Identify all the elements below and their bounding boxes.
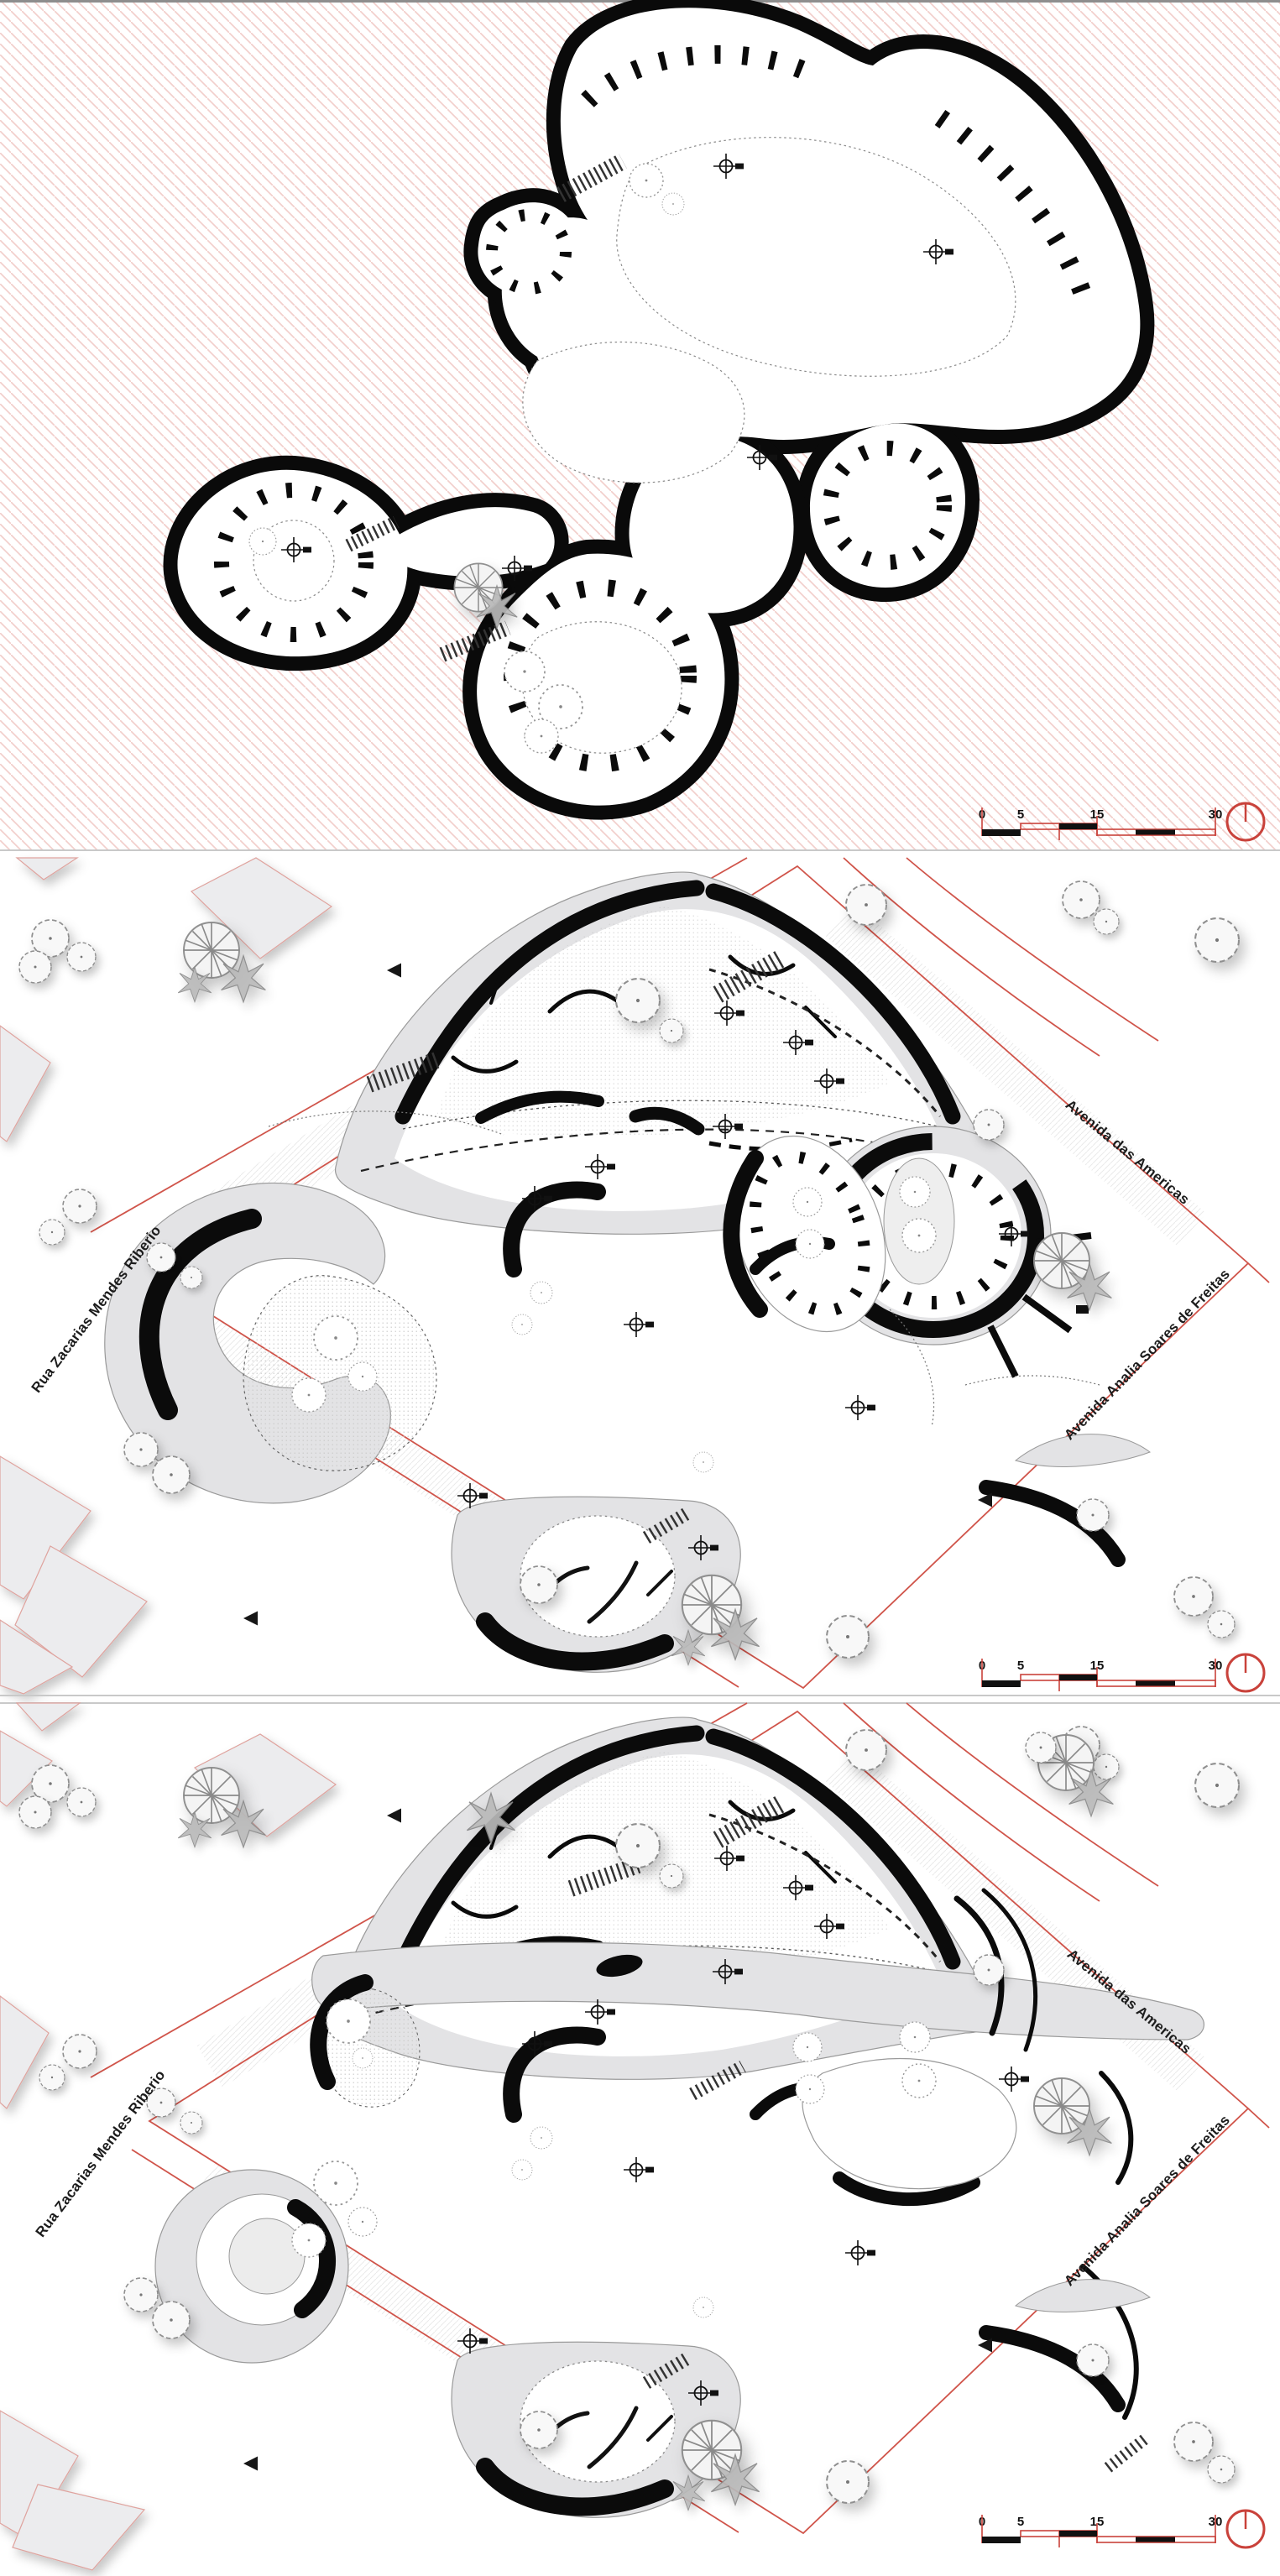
tree-icon (249, 528, 276, 555)
terrace (1016, 2280, 1150, 2312)
panel-divider (0, 1702, 1280, 1704)
tree-icon (525, 719, 558, 753)
scale-bar (979, 1654, 1264, 1691)
tree-icon (504, 651, 545, 692)
context-buildings (0, 1703, 336, 2570)
tree-icon (662, 193, 684, 215)
panel-floor-plan (0, 0, 1280, 851)
scale-bar (979, 2511, 1264, 2547)
panel-divider (0, 1695, 1280, 1696)
terrace (1016, 1434, 1150, 1467)
tree-icon (630, 164, 663, 197)
east-wing (708, 1115, 1091, 1377)
panel-divider (0, 849, 1280, 851)
drawing-sheet: 0 5 15 30 (0, 0, 1280, 2576)
panel-roof-plan (0, 1703, 1269, 2570)
panel-site-plan (0, 858, 1280, 1704)
plans-canvas: 0 5 15 30 (0, 0, 1280, 2576)
